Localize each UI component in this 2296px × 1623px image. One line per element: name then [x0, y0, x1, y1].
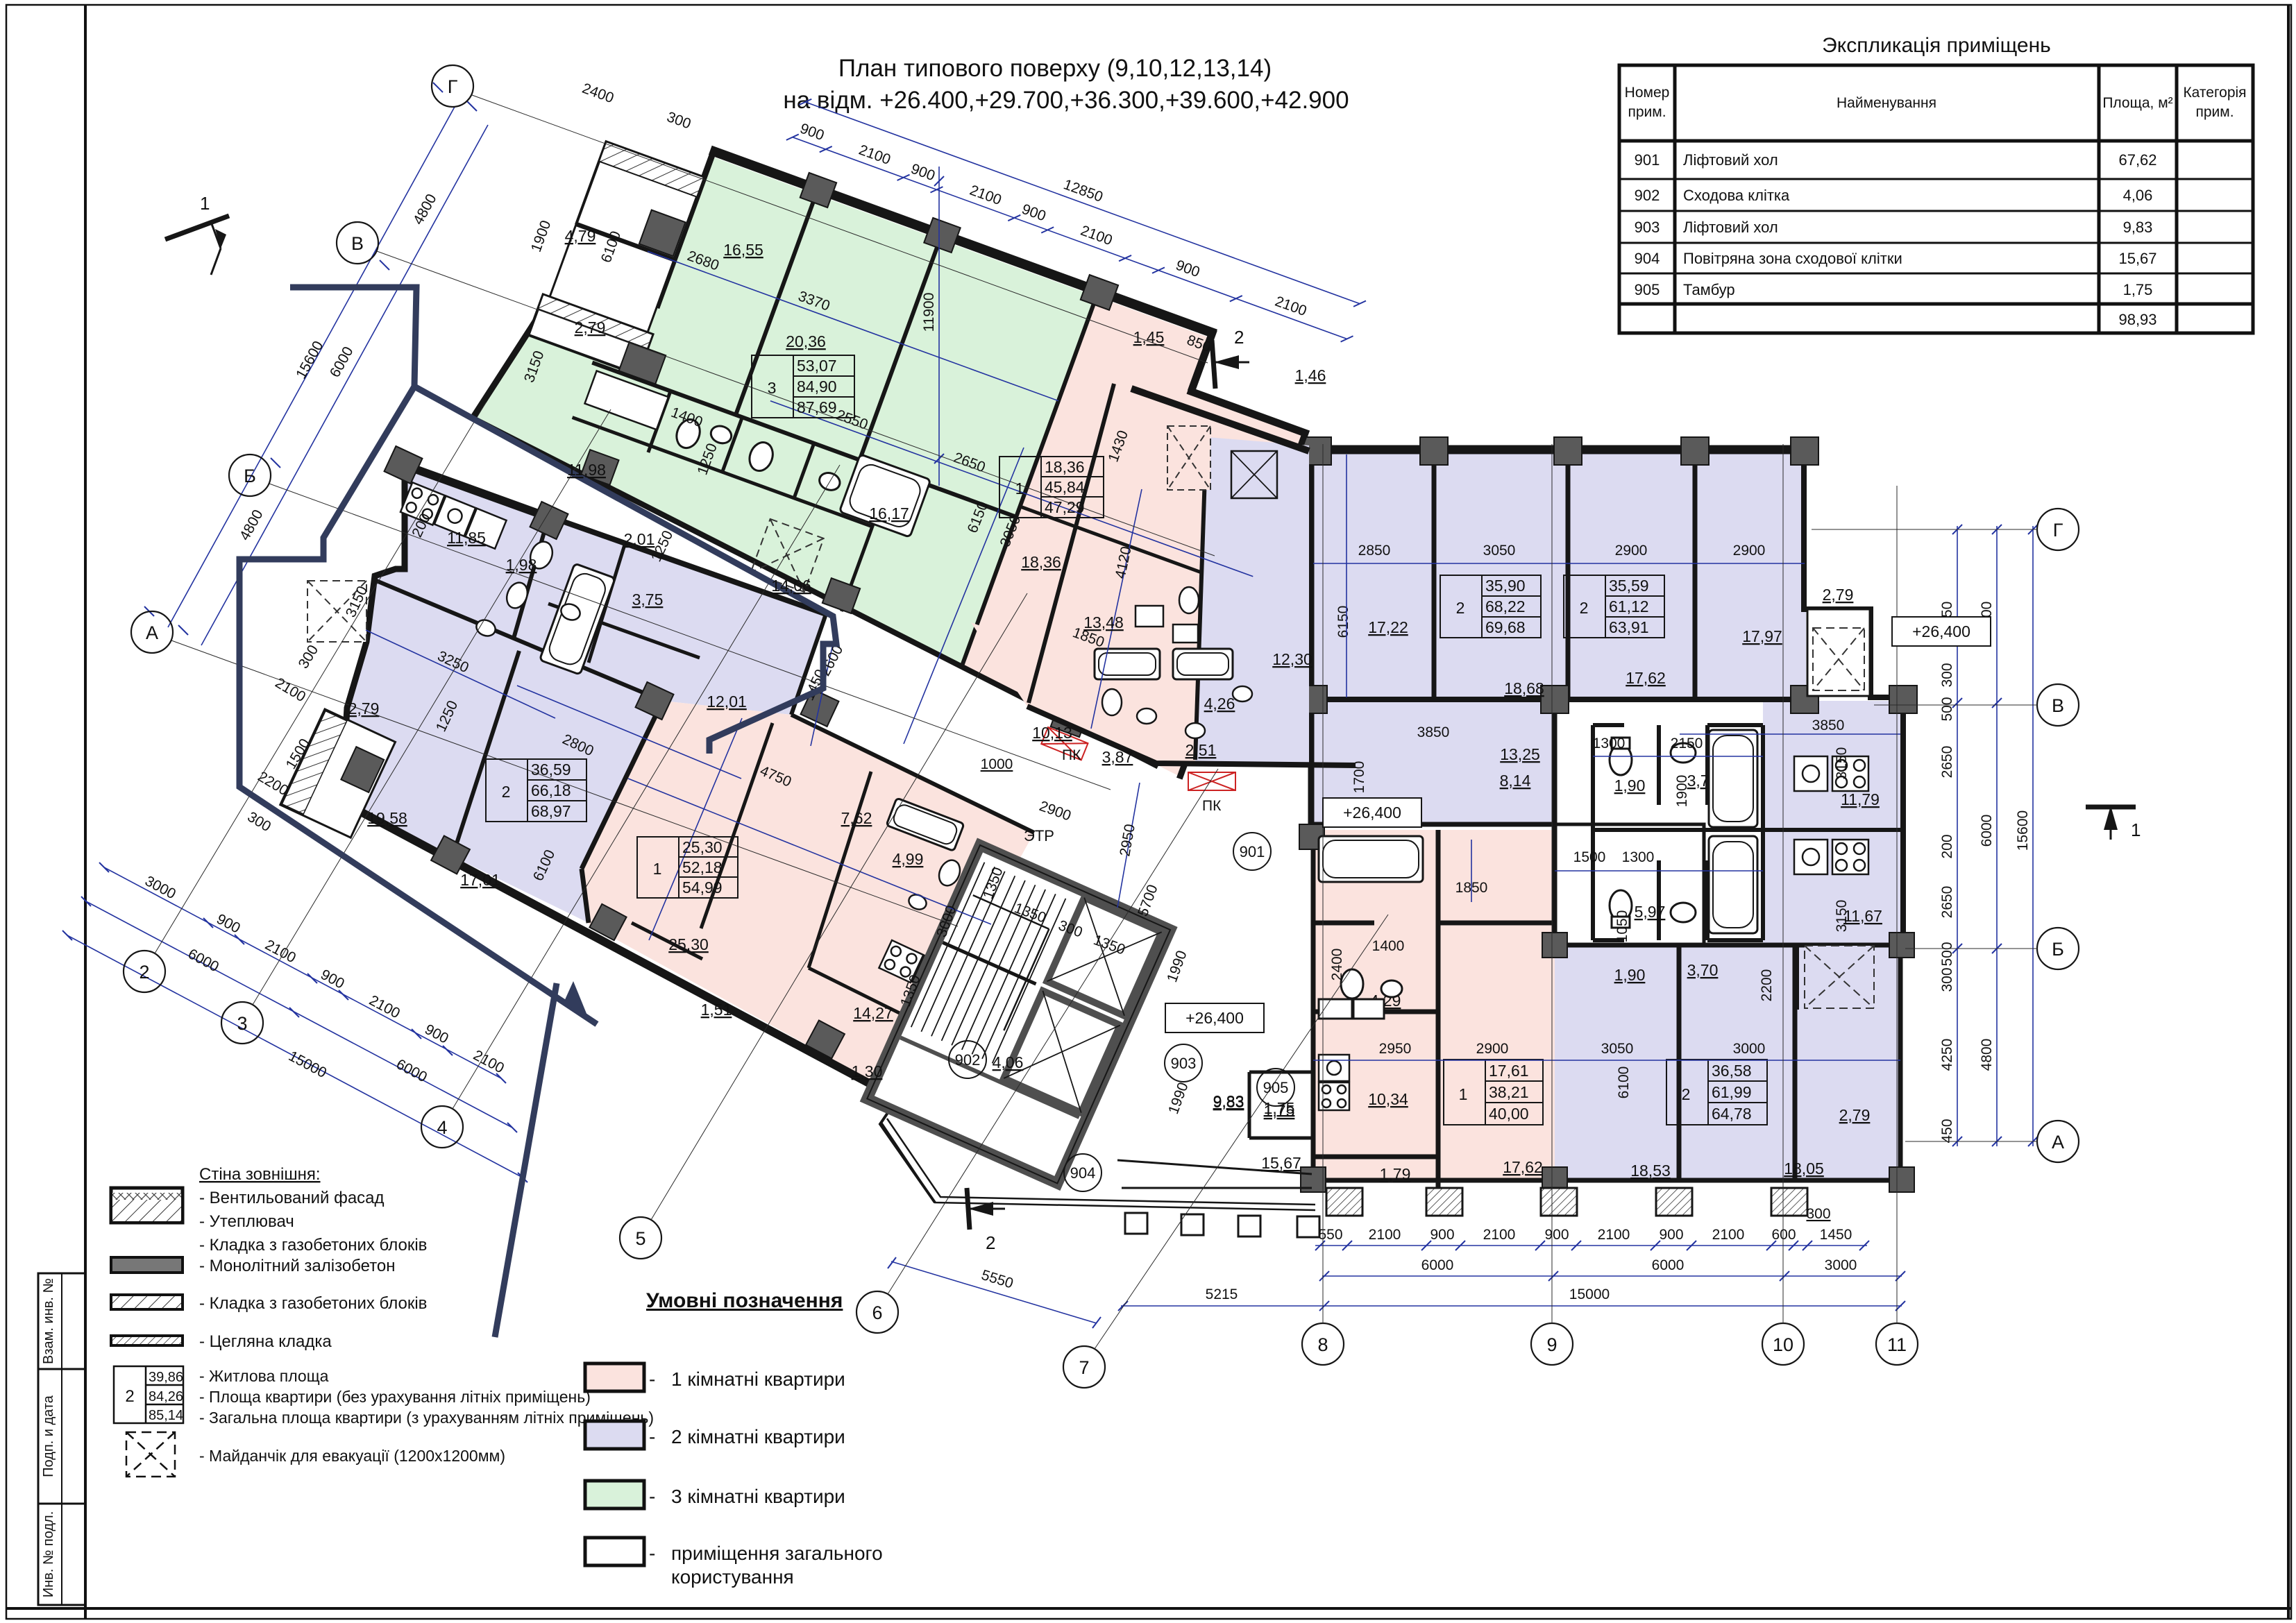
svg-text:А: А	[2052, 1132, 2064, 1153]
svg-text:69,68: 69,68	[1485, 618, 1526, 636]
svg-text:приміщення загального: приміщення загального	[671, 1543, 883, 1564]
svg-text:9: 9	[1546, 1334, 1557, 1355]
svg-text:Площа, м²: Площа, м²	[2102, 95, 2172, 111]
svg-text:3850: 3850	[1812, 717, 1845, 733]
svg-text:25,30: 25,30	[682, 838, 723, 856]
svg-text:85,14: 85,14	[149, 1408, 183, 1423]
svg-text:2: 2	[1580, 599, 1589, 617]
svg-text:300: 300	[1939, 967, 1955, 992]
svg-text:901: 901	[1240, 843, 1265, 860]
svg-text:903: 903	[1635, 219, 1660, 236]
svg-text:35,90: 35,90	[1485, 577, 1526, 595]
svg-text:10,34: 10,34	[1368, 1090, 1408, 1108]
svg-text:-: -	[649, 1486, 655, 1507]
svg-text:904: 904	[1070, 1164, 1096, 1182]
svg-text:9,83: 9,83	[1213, 1093, 1244, 1111]
svg-text:11,98: 11,98	[567, 461, 606, 479]
svg-text:903: 903	[1171, 1055, 1197, 1072]
svg-text:1000: 1000	[981, 756, 1013, 772]
svg-text:3150: 3150	[1834, 900, 1850, 933]
svg-text:64,78: 64,78	[1712, 1105, 1752, 1123]
svg-text:1500: 1500	[1573, 849, 1606, 865]
svg-text:1,51: 1,51	[701, 1001, 732, 1019]
svg-text:905: 905	[1635, 281, 1660, 298]
svg-text:ЭТР: ЭТР	[1024, 827, 1054, 844]
svg-text:35,59: 35,59	[1609, 577, 1649, 595]
svg-text:7,62: 7,62	[841, 809, 872, 827]
svg-text:13,48: 13,48	[1083, 613, 1124, 631]
svg-text:450: 450	[1939, 1119, 1955, 1143]
svg-text:2150: 2150	[1671, 736, 1703, 751]
svg-text:1300: 1300	[1622, 849, 1655, 865]
svg-text:550: 550	[1318, 1227, 1342, 1243]
svg-text:19,58: 19,58	[367, 809, 407, 827]
svg-text:Номер: Номер	[1625, 85, 1670, 101]
svg-text:17,61: 17,61	[1489, 1062, 1529, 1080]
svg-text:4800: 4800	[1979, 1039, 1995, 1071]
svg-text:7: 7	[1079, 1357, 1089, 1378]
svg-text:300: 300	[1806, 1206, 1830, 1222]
svg-text:1: 1	[1459, 1085, 1468, 1103]
svg-text:15000: 15000	[1569, 1286, 1610, 1302]
svg-text:14,27: 14,27	[853, 1004, 893, 1022]
svg-text:500: 500	[1939, 942, 1955, 966]
svg-text:6000: 6000	[1652, 1257, 1685, 1273]
svg-text:40,00: 40,00	[1489, 1105, 1529, 1123]
svg-text:1900: 1900	[1674, 775, 1690, 808]
svg-text:11: 11	[1887, 1334, 1907, 1355]
svg-text:ПК: ПК	[1062, 747, 1081, 763]
svg-text:А: А	[146, 622, 158, 643]
svg-text:5,97: 5,97	[1635, 903, 1666, 921]
svg-text:3 кімнатні квартири: 3 кімнатні квартири	[671, 1486, 845, 1507]
svg-text:3850: 3850	[1417, 724, 1450, 740]
svg-text:17,22: 17,22	[1368, 618, 1408, 636]
svg-text:4,06: 4,06	[2123, 187, 2153, 204]
svg-text:20,36: 20,36	[786, 332, 826, 350]
svg-text:18,05: 18,05	[1784, 1159, 1824, 1178]
svg-text:5: 5	[635, 1228, 645, 1249]
svg-text:Подп. и дата: Подп. и дата	[41, 1395, 56, 1477]
svg-text:1,79: 1,79	[1380, 1165, 1411, 1183]
svg-text:Категорія: Категорія	[2183, 85, 2246, 101]
svg-text:18,36: 18,36	[1021, 553, 1061, 571]
svg-text:2850: 2850	[1358, 543, 1391, 559]
svg-text:- Майданчік для евакуації (120: - Майданчік для евакуації (1200х1200мм)	[199, 1447, 505, 1465]
svg-text:1400: 1400	[1372, 938, 1405, 954]
svg-text:-: -	[649, 1543, 655, 1564]
svg-text:2200: 2200	[1759, 969, 1775, 1002]
svg-text:В: В	[351, 233, 364, 254]
svg-text:84,26: 84,26	[149, 1389, 183, 1404]
svg-text:3000: 3000	[1825, 1257, 1857, 1273]
svg-text:18,68: 18,68	[1504, 679, 1544, 697]
svg-text:Повітряна зона сходової клітки: Повітряна зона сходової клітки	[1683, 250, 1902, 267]
svg-text:36,58: 36,58	[1712, 1062, 1752, 1080]
svg-text:2,01: 2,01	[624, 530, 655, 548]
svg-text:Сходова клітка: Сходова клітка	[1683, 187, 1790, 204]
svg-text:2100: 2100	[1369, 1227, 1401, 1243]
svg-text:61,99: 61,99	[1712, 1083, 1752, 1101]
svg-text:3,75: 3,75	[632, 590, 664, 609]
svg-text:200: 200	[1939, 834, 1955, 858]
svg-text:План типового поверху (9,10,1: План типового поверху (9,10,12,13,14)	[838, 55, 1272, 82]
svg-text:16,17: 16,17	[869, 504, 909, 522]
svg-text:3050: 3050	[1601, 1041, 1634, 1057]
svg-text:87,69: 87,69	[797, 398, 837, 416]
svg-text:8,14: 8,14	[1500, 772, 1531, 790]
svg-text:17,62: 17,62	[1503, 1158, 1543, 1176]
svg-text:6000: 6000	[1979, 815, 1995, 847]
svg-text:6150: 6150	[1335, 606, 1351, 638]
svg-text:2,79: 2,79	[1839, 1106, 1871, 1124]
svg-text:17,01: 17,01	[460, 871, 500, 889]
svg-text:1,45: 1,45	[1133, 328, 1165, 346]
svg-text:12,01: 12,01	[707, 692, 747, 711]
svg-text:902: 902	[1635, 187, 1660, 204]
svg-text:Стіна зовнішня:: Стіна зовнішня:	[199, 1165, 321, 1184]
svg-text:18,36: 18,36	[1045, 458, 1085, 476]
svg-text:+26,400: +26,400	[1343, 804, 1401, 822]
svg-text:63,91: 63,91	[1609, 618, 1649, 636]
svg-text:-: -	[649, 1426, 655, 1447]
svg-text:61,12: 61,12	[1609, 597, 1649, 615]
svg-text:2950: 2950	[1379, 1041, 1412, 1057]
svg-text:2100: 2100	[1483, 1227, 1516, 1243]
svg-text:Б: Б	[2052, 939, 2064, 960]
svg-text:4: 4	[437, 1117, 447, 1138]
svg-text:11,79: 11,79	[1841, 790, 1880, 808]
svg-text:4,99: 4,99	[893, 850, 924, 868]
svg-text:4,26: 4,26	[1204, 695, 1235, 713]
svg-text:Экспликація приміщень: Экспликація приміщень	[1822, 34, 2051, 57]
svg-text:5215: 5215	[1206, 1286, 1238, 1302]
svg-text:- Цегляна кладка: - Цегляна кладка	[199, 1332, 332, 1351]
svg-text:3000: 3000	[1733, 1041, 1766, 1057]
svg-text:1: 1	[2131, 819, 2141, 840]
svg-text:10,13: 10,13	[1032, 724, 1072, 742]
svg-text:Б: Б	[244, 466, 256, 486]
svg-text:2900: 2900	[1476, 1041, 1509, 1057]
svg-text:15,67: 15,67	[2118, 250, 2156, 267]
svg-text:15600: 15600	[2015, 810, 2031, 851]
svg-text:Тамбур: Тамбур	[1683, 281, 1735, 298]
svg-text:ПК: ПК	[1202, 798, 1222, 814]
svg-text:1,90: 1,90	[1614, 776, 1646, 794]
svg-text:2: 2	[986, 1232, 995, 1253]
svg-text:68,22: 68,22	[1485, 597, 1526, 615]
svg-text:14,06: 14,06	[771, 577, 811, 595]
svg-text:25,30: 25,30	[668, 935, 709, 953]
svg-text:4,06: 4,06	[993, 1053, 1024, 1071]
svg-text:Ліфтовий хол: Ліфтовий хол	[1683, 219, 1778, 236]
svg-text:18,53: 18,53	[1630, 1162, 1671, 1180]
svg-text:-: -	[649, 1368, 655, 1390]
svg-text:1,46: 1,46	[1295, 366, 1326, 384]
svg-text:2100: 2100	[1712, 1227, 1745, 1243]
svg-text:2900: 2900	[1615, 543, 1648, 559]
svg-text:Найменування: Найменування	[1837, 95, 1936, 111]
svg-text:11900: 11900	[921, 293, 937, 332]
svg-text:6: 6	[872, 1302, 882, 1323]
svg-text:2: 2	[1234, 327, 1244, 348]
svg-text:на відм. +26.400,+29.700,+36.3: на відм. +26.400,+29.700,+36.300,+39.600…	[783, 87, 1349, 114]
svg-text:3: 3	[237, 1013, 247, 1034]
svg-text:600: 600	[1771, 1227, 1796, 1243]
svg-text:- Площа квартири (без урахуван: - Площа квартири (без урахування літніх …	[199, 1388, 591, 1406]
svg-text:- Кладка з газобетоних блоків: - Кладка з газобетоних блоків	[199, 1294, 427, 1313]
svg-text:47,29: 47,29	[1045, 498, 1085, 516]
svg-text:54,99: 54,99	[682, 878, 723, 897]
svg-text:300: 300	[1939, 663, 1955, 687]
svg-text:- Монолітний залізобетон: - Монолітний залізобетон	[199, 1257, 396, 1275]
svg-text:902: 902	[955, 1051, 981, 1069]
svg-text:2650: 2650	[1939, 746, 1955, 779]
svg-text:6000: 6000	[1421, 1257, 1454, 1273]
svg-text:прим.: прим.	[2195, 104, 2234, 120]
svg-text:2100: 2100	[1598, 1227, 1630, 1243]
svg-text:2: 2	[1456, 599, 1465, 617]
svg-text:1: 1	[200, 193, 210, 214]
svg-text:2,51: 2,51	[1185, 741, 1217, 759]
svg-text:500: 500	[1939, 697, 1955, 721]
svg-text:- Житлова площа: - Житлова площа	[199, 1367, 329, 1385]
svg-text:36,59: 36,59	[531, 760, 571, 779]
svg-text:1: 1	[653, 860, 662, 878]
svg-text:Г: Г	[2053, 520, 2063, 541]
svg-text:- Утеплювач: - Утеплювач	[199, 1212, 294, 1231]
svg-text:Инв. № подл.: Инв. № подл.	[41, 1511, 56, 1598]
svg-text:2,79: 2,79	[575, 318, 606, 337]
svg-text:1,90: 1,90	[1614, 966, 1646, 984]
svg-text:2: 2	[502, 783, 511, 801]
svg-text:9,83: 9,83	[2123, 219, 2153, 236]
svg-text:66,18: 66,18	[531, 781, 571, 799]
svg-text:10: 10	[1773, 1334, 1793, 1355]
svg-text:84,90: 84,90	[797, 377, 837, 396]
svg-text:2,79: 2,79	[1823, 586, 1854, 604]
svg-text:16,55: 16,55	[723, 241, 763, 259]
svg-text:3,70: 3,70	[1687, 961, 1719, 979]
svg-text:4,79: 4,79	[565, 227, 596, 245]
svg-text:900: 900	[1659, 1227, 1683, 1243]
svg-text:13,25: 13,25	[1500, 745, 1540, 763]
svg-text:17,97: 17,97	[1742, 627, 1782, 645]
svg-text:12,30: 12,30	[1272, 650, 1312, 668]
svg-text:+26,400: +26,400	[1912, 622, 1970, 640]
svg-text:2,79: 2,79	[348, 699, 380, 717]
svg-text:905: 905	[1263, 1079, 1289, 1096]
svg-text:прим.: прим.	[1628, 104, 1666, 120]
svg-text:2400: 2400	[1329, 949, 1345, 981]
svg-text:2 кімнатні квартири: 2 кімнатні квартири	[671, 1426, 845, 1447]
svg-text:900: 900	[1544, 1227, 1569, 1243]
svg-text:15,67: 15,67	[1261, 1154, 1301, 1172]
svg-text:39,86: 39,86	[149, 1370, 183, 1385]
svg-text:2: 2	[139, 962, 149, 983]
svg-text:67,62: 67,62	[2118, 151, 2156, 169]
svg-text:Г: Г	[448, 76, 458, 97]
svg-text:3050: 3050	[1483, 543, 1516, 559]
svg-text:1 кімнатні квартири: 1 кімнатні квартири	[671, 1368, 845, 1390]
svg-text:901: 901	[1635, 151, 1660, 169]
svg-text:- Кладка з газобетоних блоків: - Кладка з газобетоних блоків	[199, 1236, 427, 1255]
svg-text:2650: 2650	[1939, 886, 1955, 919]
svg-text:38,21: 38,21	[1489, 1083, 1529, 1101]
svg-text:1: 1	[1015, 479, 1024, 498]
svg-text:11,85: 11,85	[447, 529, 486, 547]
svg-text:45,84: 45,84	[1045, 478, 1085, 496]
svg-text:6100: 6100	[1616, 1067, 1632, 1099]
svg-text:904: 904	[1635, 250, 1660, 267]
svg-text:68,97: 68,97	[531, 802, 571, 820]
svg-text:2: 2	[1682, 1085, 1691, 1103]
svg-text:3,87: 3,87	[1102, 748, 1133, 766]
svg-text:52,18: 52,18	[682, 858, 723, 876]
svg-text:+26,400: +26,400	[1185, 1009, 1244, 1027]
svg-text:Умовні позначення: Умовні позначення	[646, 1289, 843, 1312]
svg-text:В: В	[2052, 695, 2064, 716]
svg-text:користування: користування	[671, 1566, 794, 1588]
svg-text:900: 900	[1430, 1227, 1454, 1243]
svg-text:2900: 2900	[1733, 543, 1766, 559]
svg-text:Ліфтовий хол: Ліфтовий хол	[1683, 151, 1778, 169]
svg-text:1050: 1050	[1614, 910, 1630, 943]
svg-text:3: 3	[768, 379, 777, 397]
svg-text:2: 2	[125, 1387, 134, 1406]
svg-text:- Вентильований фасад: - Вентильований фасад	[199, 1189, 385, 1207]
svg-text:3150: 3150	[1834, 747, 1850, 780]
svg-text:98,93: 98,93	[2118, 311, 2156, 328]
svg-text:17,62: 17,62	[1626, 669, 1666, 687]
svg-text:1450: 1450	[1820, 1227, 1852, 1243]
svg-text:1,98: 1,98	[506, 556, 537, 574]
svg-text:1300: 1300	[1593, 736, 1626, 751]
svg-text:4250: 4250	[1939, 1039, 1955, 1071]
svg-text:1,30: 1,30	[852, 1062, 883, 1080]
svg-text:1,75: 1,75	[2123, 281, 2153, 298]
svg-text:53,07: 53,07	[797, 357, 837, 375]
svg-text:Взам. инв. №: Взам. инв. №	[41, 1278, 56, 1364]
svg-text:8: 8	[1317, 1334, 1328, 1355]
